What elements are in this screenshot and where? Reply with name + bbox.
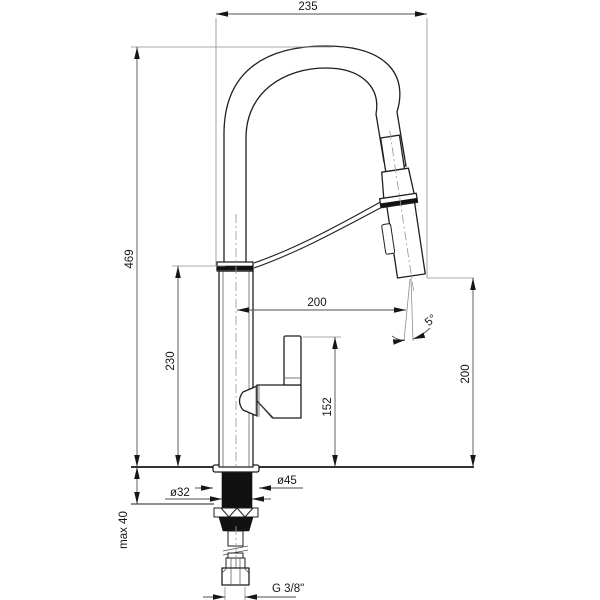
dim-label-5deg: 5° (423, 313, 439, 329)
dim-label-200-reach: 200 (307, 297, 326, 309)
mounting-shank (222, 470, 252, 508)
dim-label-235: 235 (298, 1, 317, 13)
connection-nut (222, 558, 249, 585)
dim-label-thread: G 3/8" (272, 583, 304, 595)
body-collar (217, 262, 253, 271)
dim-body-height: 230 (165, 266, 178, 467)
extension-lines (131, 18, 474, 600)
handle-body (257, 385, 301, 418)
dim-handle-height: 152 (322, 337, 335, 467)
spray-head (368, 128, 431, 295)
dim-spray-height: 200 (460, 278, 473, 467)
drawing-page: 235 469 230 200 152 200 max 40 ø45 ø32 (0, 0, 600, 600)
dim-label-d32: ø32 (170, 487, 190, 499)
dim-spout-width: 235 (216, 1, 427, 14)
mounting-washer (214, 508, 258, 517)
dim-label-200-height: 200 (460, 364, 472, 383)
dim-label-max40: max 40 (118, 511, 130, 549)
spout-arch (224, 46, 406, 266)
dim-counter-thickness: max 40 (118, 467, 137, 549)
dim-hole-diameter: ø32 (165, 487, 271, 499)
dim-label-152: 152 (322, 397, 334, 416)
supply-pipe (223, 531, 248, 560)
dim-label-469: 469 (124, 249, 136, 268)
dim-label-230: 230 (165, 351, 177, 370)
dim-total-height: 469 (124, 47, 137, 467)
dim-thread: G 3/8" (203, 583, 304, 597)
dim-label-d45: ø45 (277, 475, 297, 487)
faucet-technical-drawing: 235 469 230 200 152 200 max 40 ø45 ø32 (0, 0, 600, 600)
pull-out-hose (254, 200, 386, 268)
dim-spout-reach: 200 (237, 297, 406, 310)
